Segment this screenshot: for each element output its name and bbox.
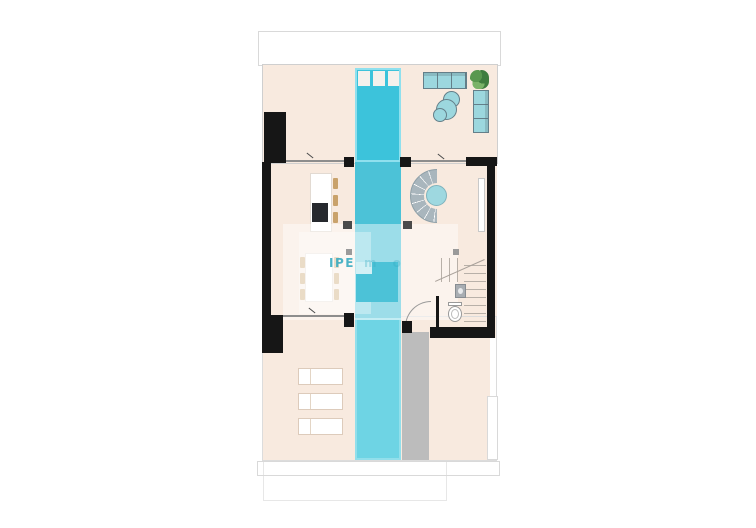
watermark-handle (346, 249, 352, 255)
plant-symbol (470, 70, 489, 89)
walkway (402, 332, 429, 460)
wall-pier-pool-mid-right (403, 221, 412, 229)
window-right (478, 178, 485, 232)
round-lounge-chair-foot (433, 108, 447, 122)
toilet-bowl (448, 306, 462, 322)
bar-stool (333, 212, 338, 223)
pool-step (373, 71, 385, 86)
pool-section-back (355, 318, 401, 460)
wall-pier-left-top (264, 112, 286, 163)
lounger-pillow-line (310, 419, 311, 434)
round-table (426, 185, 447, 206)
watermark-text-strong: IPE (329, 256, 355, 270)
terrace-sofa-horizontal (423, 72, 467, 89)
toilet-seat (451, 309, 459, 319)
wall-pier-pool-right (400, 157, 411, 167)
wall-pier-pool-left (344, 157, 354, 167)
sun-lounger (298, 368, 343, 385)
sun-lounger (298, 393, 343, 410)
roof-overhang-outline-top (258, 31, 501, 66)
bar-stool (333, 195, 338, 206)
wall-line-living-left (286, 160, 344, 162)
sink-basin (458, 288, 463, 294)
wall-pier-left-bottom (262, 315, 283, 353)
lounger-pillow-line (310, 394, 311, 409)
pool-step (388, 71, 399, 86)
sun-lounger (298, 418, 343, 435)
wall-line-living-right (410, 160, 466, 162)
watermark-text: IPEm o (329, 256, 407, 270)
bar-stool (333, 178, 338, 189)
terrace-sofa-vertical (473, 90, 489, 133)
floor-plan-canvas: IPEm o (0, 0, 756, 528)
watermark-text-faint: m o (364, 256, 407, 270)
watermark-handle (453, 249, 459, 255)
pool-section-top (355, 68, 401, 162)
wall-left (262, 162, 271, 316)
sink (455, 284, 466, 298)
site-outline-bottom (257, 461, 500, 476)
exterior-notch (490, 338, 497, 460)
wall-pier-pool-mid-left (343, 221, 352, 229)
wall-right (487, 157, 495, 338)
wall-pier-walkway (402, 321, 412, 333)
wall-pier-pool-back (344, 313, 354, 327)
site-outline-bottom-inner (263, 461, 447, 501)
lounger-pillow-line (310, 369, 311, 384)
stair-flight-right (464, 258, 486, 327)
wall-bathroom-bottom (430, 327, 493, 338)
pool-step (358, 71, 370, 86)
cooktop (312, 203, 328, 222)
